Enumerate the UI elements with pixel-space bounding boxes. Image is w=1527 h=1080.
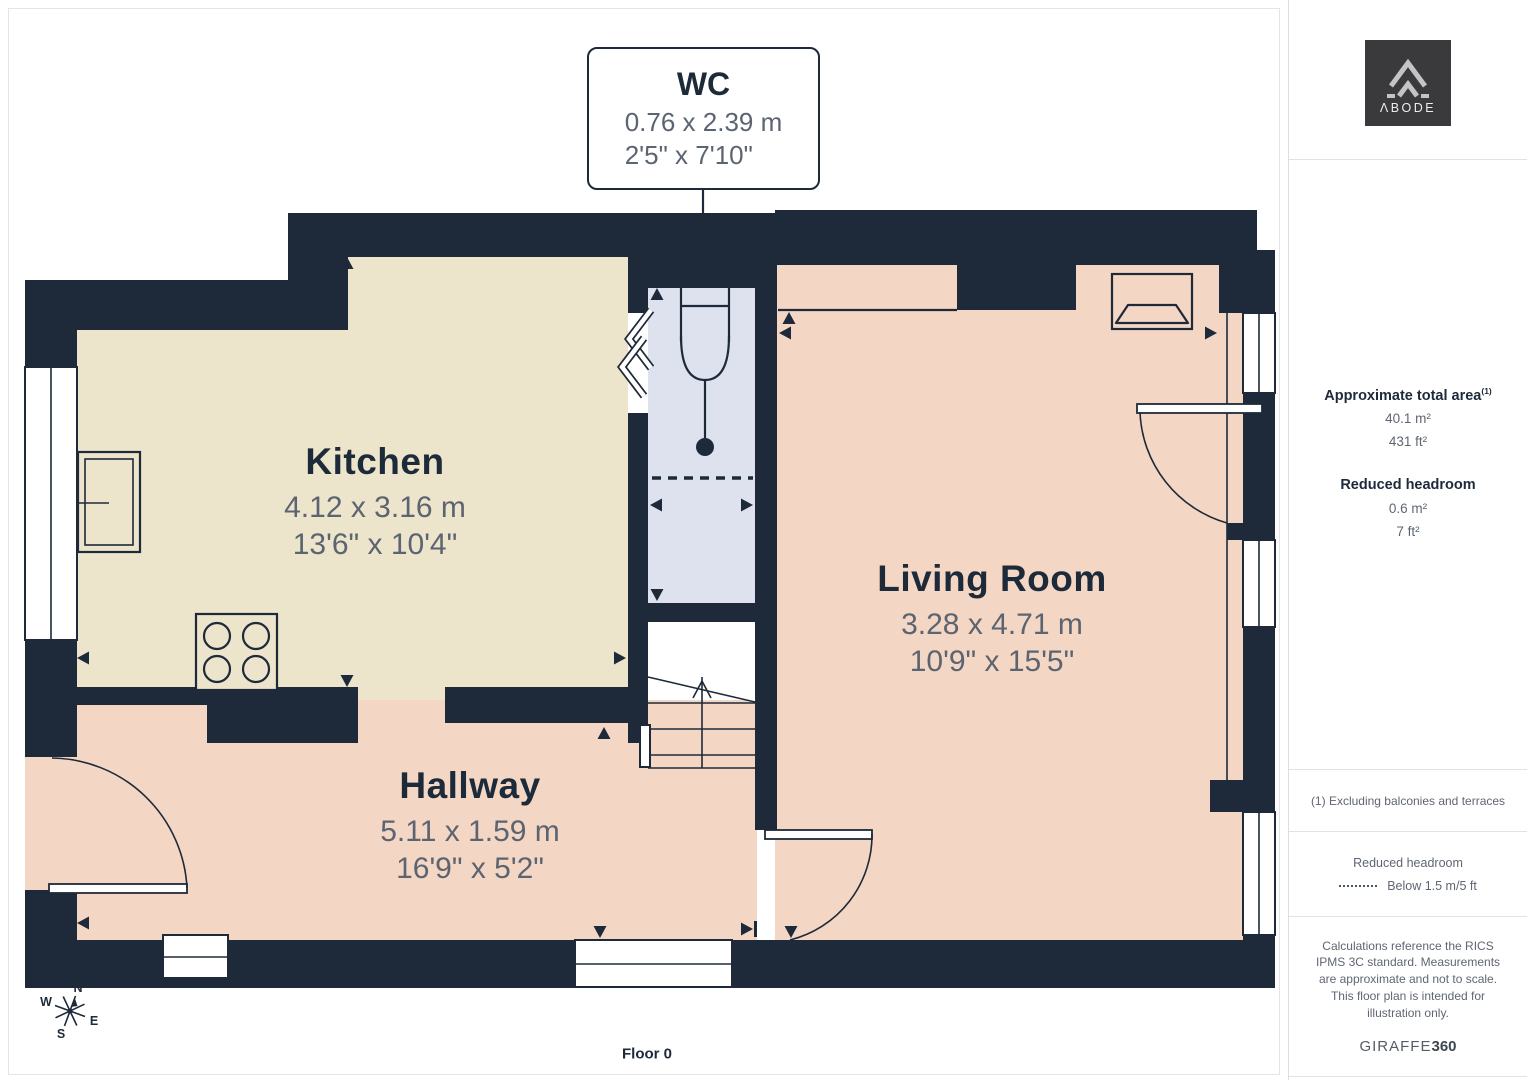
- dashed-line-sample: [1339, 885, 1377, 887]
- logo-section: ΛBODE: [1289, 0, 1527, 160]
- compass-south-label: S: [57, 1027, 65, 1041]
- footnote-text: (1) Excluding balconies and terraces: [1311, 794, 1505, 808]
- floorplan-page: WC 0.76 x 2.39 m 2'5" x 7'10" Kitchen 4.…: [0, 0, 1527, 1080]
- entrance-steps: [575, 940, 732, 987]
- abode-logo-text: ΛBODE: [1380, 101, 1436, 115]
- giraffe360-brand: GIRAFFE360: [1359, 1038, 1456, 1055]
- wc-room-dims: 0.76 x 2.39 m 2'5" x 7'10": [625, 106, 783, 171]
- wc-room-name: WC: [677, 66, 730, 103]
- hob-symbol: [196, 614, 277, 690]
- reduced-headroom-title: Reduced headroom: [1340, 477, 1475, 493]
- reduced-headroom-ft2: 7 ft²: [1389, 520, 1427, 543]
- window-left-wall: [25, 367, 77, 640]
- stair-door-leaf: [640, 725, 650, 767]
- disclaimer-text: Calculations reference the RICS IPMS 3C …: [1309, 938, 1507, 1022]
- total-area-title: Approximate total area(1): [1324, 386, 1492, 404]
- window-right-middle: [1243, 540, 1275, 627]
- floor-label: Floor 0: [622, 1046, 672, 1063]
- abode-logo: ΛBODE: [1365, 40, 1451, 126]
- compass-north-label: N: [73, 981, 82, 995]
- total-area-ft2: 431 ft²: [1385, 430, 1431, 453]
- footnote-section: (1) Excluding balconies and terraces: [1289, 770, 1527, 832]
- window-right-top: [1243, 313, 1275, 393]
- floorplan-canvas: WC 0.76 x 2.39 m 2'5" x 7'10" Kitchen 4.…: [0, 0, 1287, 1080]
- compass-rose: [55, 996, 85, 1026]
- window-bottom-wall: [163, 935, 228, 978]
- compass-west-label: W: [40, 995, 52, 1009]
- area-section: Approximate total area(1) 40.1 m² 431 ft…: [1289, 160, 1527, 770]
- legend-title: Reduced headroom: [1353, 856, 1463, 870]
- compass-east-label: E: [90, 1014, 98, 1028]
- legend-value: Below 1.5 m/5 ft: [1387, 879, 1477, 893]
- reduced-headroom-m2: 0.6 m²: [1389, 497, 1427, 520]
- legend-section: Reduced headroom Below 1.5 m/5 ft: [1289, 832, 1527, 917]
- wc-callout: WC 0.76 x 2.39 m 2'5" x 7'10": [587, 47, 820, 190]
- footnote-marker: (1): [1481, 386, 1491, 396]
- info-sidebar: ΛBODE Approximate total area(1) 40.1 m² …: [1288, 0, 1527, 1080]
- window-right-bottom: [1243, 812, 1275, 935]
- total-area-m2: 40.1 m²: [1385, 407, 1431, 430]
- disclaimer-section: Calculations reference the RICS IPMS 3C …: [1289, 917, 1527, 1077]
- abode-logo-icon: [1377, 55, 1439, 99]
